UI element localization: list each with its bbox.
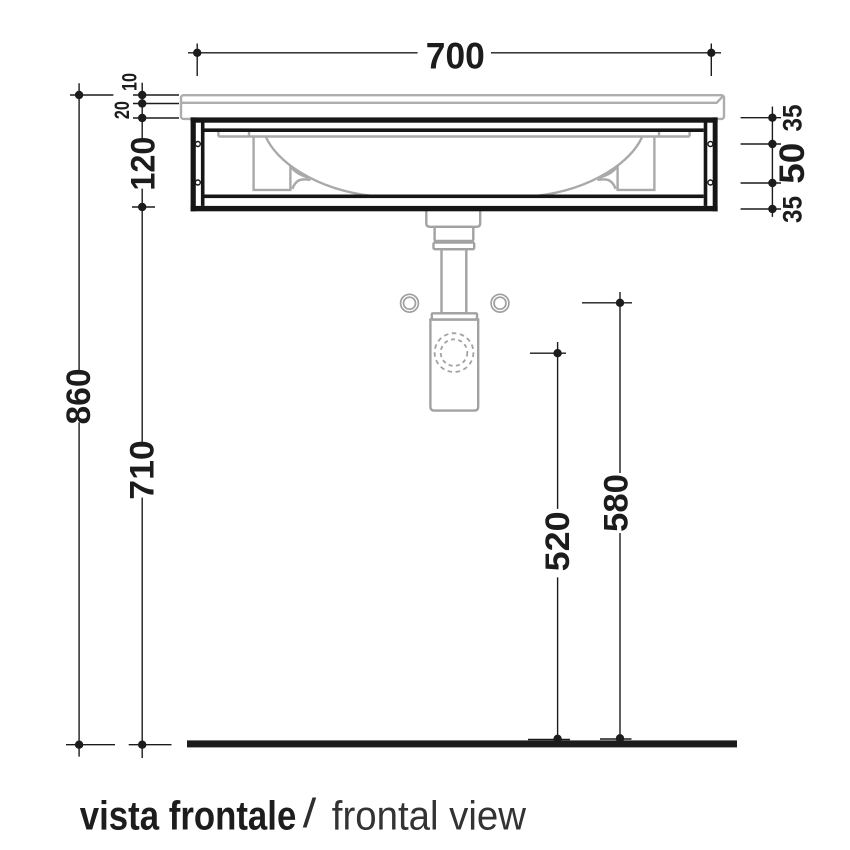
svg-text:/: / — [303, 790, 317, 836]
svg-text:120: 120 — [125, 137, 163, 191]
svg-text:35: 35 — [778, 196, 808, 223]
svg-text:20: 20 — [111, 101, 134, 119]
svg-text:35: 35 — [778, 105, 808, 132]
svg-text:520: 520 — [539, 511, 577, 571]
svg-text:710: 710 — [124, 440, 162, 500]
svg-text:860: 860 — [60, 369, 98, 425]
svg-text:700: 700 — [426, 35, 485, 77]
svg-text:10: 10 — [119, 73, 142, 91]
svg-text:vista frontale: vista frontale — [80, 793, 296, 839]
svg-text:580: 580 — [598, 474, 636, 532]
svg-text:frontal view: frontal view — [332, 793, 527, 839]
svg-text:50: 50 — [773, 143, 812, 184]
